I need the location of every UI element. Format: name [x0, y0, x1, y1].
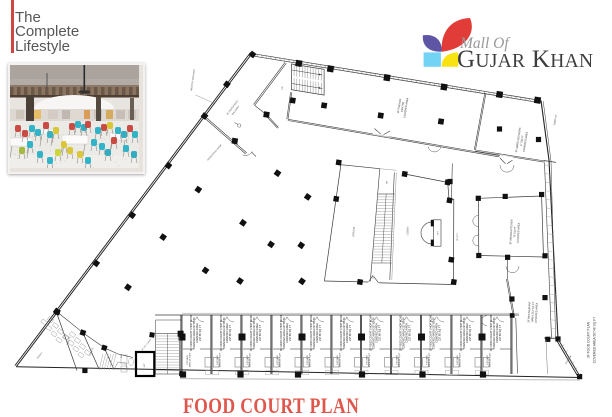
- svg-text:217.65 SQ FT: 217.65 SQ FT: [469, 325, 472, 341]
- svg-text:UP: UP: [282, 86, 285, 90]
- svg-text:RAMP UP: RAMP UP: [553, 114, 558, 125]
- svg-text:3F LIFT: 3F LIFT: [457, 232, 459, 240]
- svg-text:LIFT: LIFT: [437, 230, 439, 235]
- svg-text:217.65 SQ FT: 217.65 SQ FT: [499, 325, 502, 341]
- svg-text:UNISEX: UNISEX: [37, 352, 44, 360]
- svg-text:AHU: AHU: [120, 353, 123, 358]
- svg-text:PEDESTRIAN RAMP: PEDESTRIAN RAMP: [207, 143, 223, 161]
- svg-text:UP: UP: [386, 180, 389, 184]
- svg-text:217.65 SQ FT: 217.65 SQ FT: [229, 325, 232, 341]
- svg-text:ATRIUM: ATRIUM: [351, 227, 356, 237]
- svg-text:217.65 SQ FT: 217.65 SQ FT: [409, 325, 412, 341]
- svg-text:217.65 SQ FT: 217.65 SQ FT: [439, 325, 442, 341]
- svg-text:217.65 SQ FT: 217.65 SQ FT: [319, 325, 322, 341]
- svg-text:3F FOOD COURT PLAN: 3F FOOD COURT PLAN: [587, 321, 591, 358]
- svg-text:COVERED AREA 56748 SQ FT: COVERED AREA 56748 SQ FT: [593, 317, 597, 364]
- svg-text:TOILETS: TOILETS: [90, 347, 95, 356]
- svg-text:217.65 SQ FT: 217.65 SQ FT: [199, 325, 202, 341]
- svg-text:AREA 36 SQFT: AREA 36 SQFT: [189, 352, 192, 367]
- svg-text:COVERED AREA: COVERED AREA: [516, 222, 521, 243]
- svg-text:LIFT: LIFT: [144, 362, 146, 367]
- svg-text:LOBBY: LOBBY: [405, 226, 409, 235]
- svg-text:217.65 SQ FT: 217.65 SQ FT: [259, 325, 262, 341]
- svg-text:217.65 SQ FT: 217.65 SQ FT: [349, 325, 352, 341]
- svg-text:217.65 SQ FT: 217.65 SQ FT: [289, 325, 292, 341]
- svg-text:MEDICIN WALKWAY: MEDICIN WALKWAY: [190, 69, 196, 91]
- svg-text:217.65 SQ FT: 217.65 SQ FT: [379, 325, 382, 341]
- svg-text:3F LIFT LOBBY: 3F LIFT LOBBY: [142, 338, 153, 351]
